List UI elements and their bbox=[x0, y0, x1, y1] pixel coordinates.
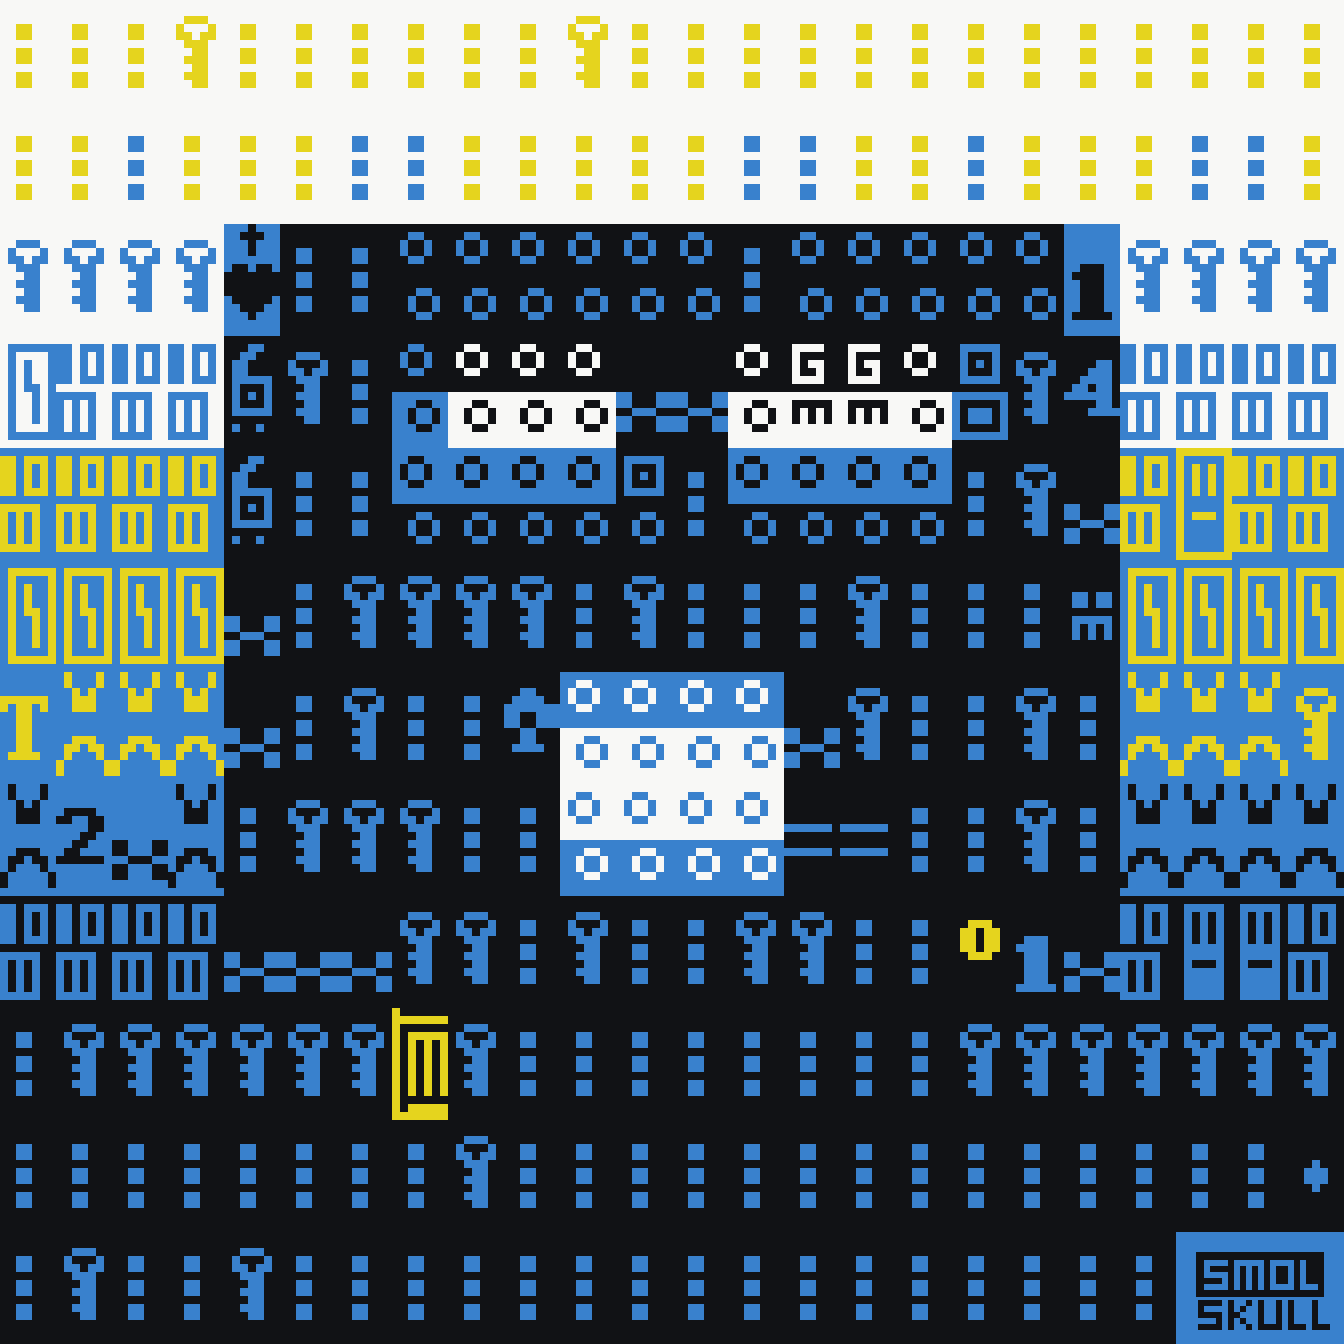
textmode-artwork: SMOL SKULL bbox=[0, 0, 1344, 1344]
art-canvas bbox=[0, 0, 1344, 1344]
